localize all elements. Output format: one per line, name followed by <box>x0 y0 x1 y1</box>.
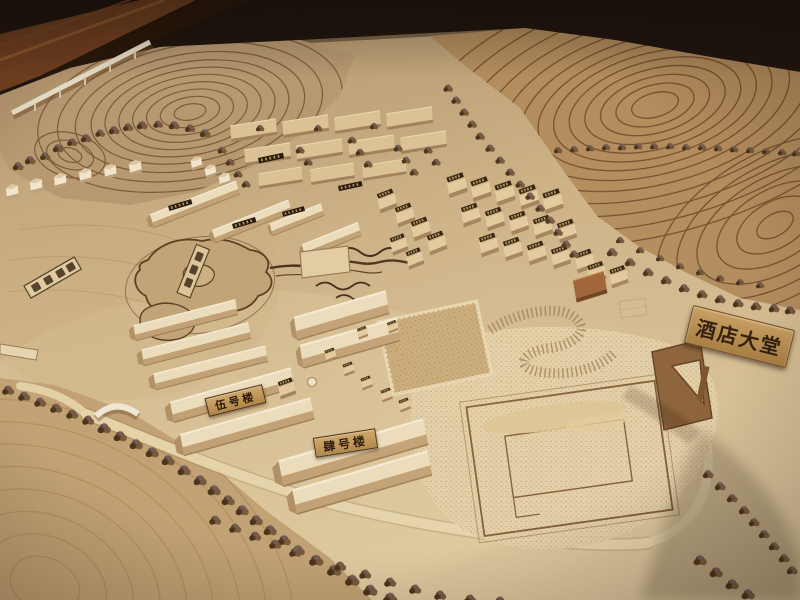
film-grain-overlay <box>0 0 800 600</box>
architectural-model-photo: 酒店大堂 伍号楼 肆号楼 <box>0 0 800 600</box>
model-scene-graphic <box>0 0 800 600</box>
